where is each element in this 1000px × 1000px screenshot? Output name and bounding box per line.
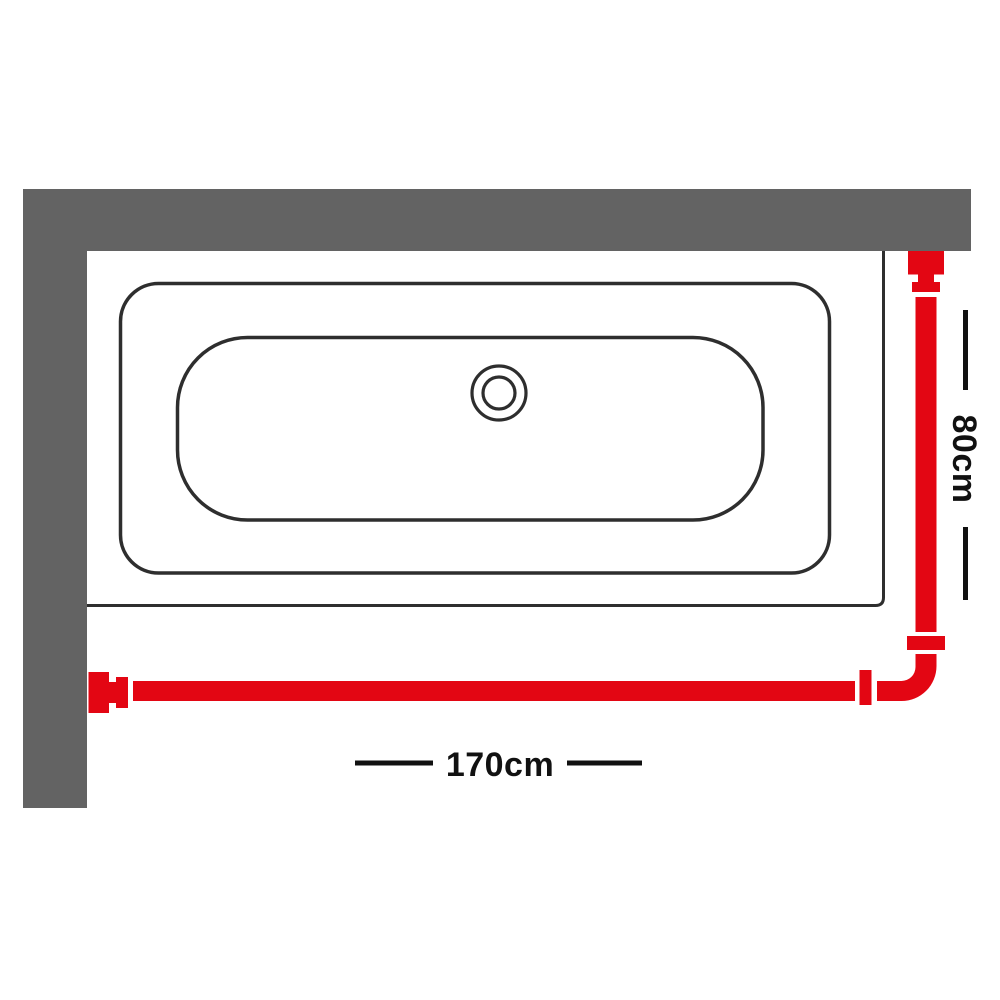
curtain-rail-diagram: 170cm 80cm (0, 0, 1000, 1000)
depth-dimension: 80cm (945, 310, 983, 600)
rail-vertical-connector (907, 636, 945, 650)
width-tick-left (355, 761, 433, 766)
diagram-canvas: 170cm 80cm (0, 0, 1000, 1000)
rail-top-mount-plate (908, 251, 944, 275)
bathtub-basin (178, 338, 764, 521)
top-wall (23, 189, 971, 251)
rail-top-mount-flange (912, 282, 940, 292)
rail-vertical-tube (916, 297, 937, 632)
rail-corner-elbow (877, 654, 937, 701)
width-dimension: 170cm (355, 746, 642, 784)
rail-side-mount-flange (116, 677, 128, 708)
width-tick-right (567, 761, 642, 766)
rail-side-mount-plate (89, 672, 110, 713)
rail-top-mount-neck (918, 275, 934, 283)
depth-dimension-label: 80cm (945, 415, 983, 504)
side-wall (23, 189, 87, 808)
depth-tick-bottom (963, 527, 968, 600)
width-dimension-label: 170cm (446, 746, 554, 784)
rail-horizontal-connector (860, 670, 872, 705)
depth-tick-top (963, 310, 968, 390)
rail-horizontal-tube (133, 681, 855, 701)
drain-inner-ring (483, 377, 515, 409)
rail-side-mount-neck (109, 682, 116, 703)
